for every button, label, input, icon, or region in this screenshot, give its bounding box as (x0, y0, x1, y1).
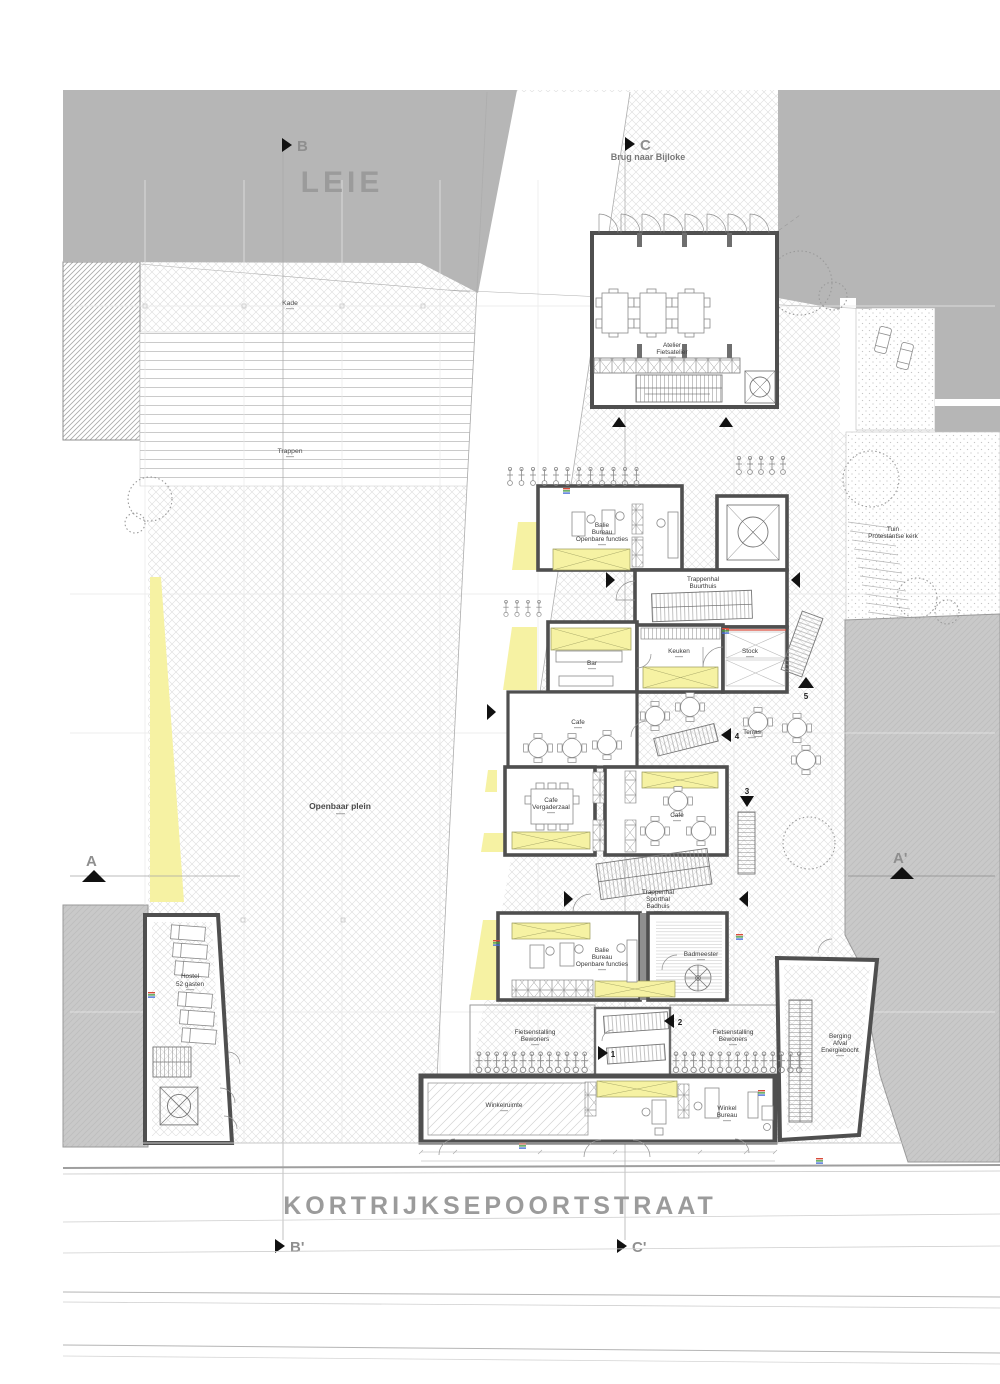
label-fietsenstalling-oost: Fietsenstalling (713, 1029, 754, 1036)
svg-text:Bewoners: Bewoners (521, 1036, 549, 1043)
label-keuken: Keuken (668, 648, 690, 655)
marker-4-label: 4 (735, 732, 740, 741)
river-stairs (140, 332, 475, 486)
svg-text:Fietsatelier: Fietsatelier (656, 349, 688, 356)
svg-text:Sporthal: Sporthal (646, 896, 670, 903)
svg-text:Energiebocht: Energiebocht (821, 1047, 859, 1054)
marker-2-label: 2 (678, 1018, 683, 1027)
parking-area (856, 308, 935, 430)
winkelruimte-floor (428, 1083, 588, 1135)
plan-canvas: Atelier Fietsatelier (0, 0, 1000, 1384)
svg-text:Bureau: Bureau (717, 1112, 738, 1119)
label-bar: Bar (587, 660, 598, 667)
label-trappenhal-sporthal: Trappenhal (642, 889, 674, 896)
label-badmeester: Badmeester (684, 951, 719, 958)
section-b-label: B (297, 138, 308, 155)
building-atelier: Atelier Fietsatelier (592, 214, 777, 427)
marker-3-label: 3 (745, 787, 750, 796)
garden-area (846, 432, 1000, 622)
section-c2-label: C' (632, 1239, 646, 1256)
svg-text:Protestantse kerk: Protestantse kerk (868, 533, 919, 540)
marker-1-label: 1 (611, 1050, 616, 1059)
label-cafe-noord: Cafe (571, 719, 585, 726)
section-a2-label: A' (893, 850, 907, 867)
label-winkelruimte: Winkelruimte (486, 1102, 523, 1109)
svg-text:Bureau: Bureau (592, 954, 613, 961)
label-street: KORTRIJKSEPOORTSTRAAT (283, 1192, 717, 1220)
site-surfaces (0, 0, 1000, 1384)
marker-5-label: 5 (804, 692, 809, 701)
storage-lockers (594, 358, 740, 373)
label-trappen: Trappen (277, 448, 302, 455)
label-balie-zuid: Balie (595, 947, 610, 954)
label-terras: Terras (743, 729, 761, 736)
svg-text:Openbare functies: Openbare functies (576, 961, 628, 968)
section-c-label: C (640, 137, 651, 154)
section-b2-label: B' (290, 1239, 304, 1256)
label-balie-noord: Balie (595, 522, 610, 529)
architectural-site-plan: Atelier Fietsatelier (0, 0, 1000, 1384)
label-hostel: Hostel (181, 973, 199, 980)
label-openbaar-plein: Openbaar plein (309, 801, 371, 811)
external-stair-3 (738, 812, 755, 874)
label-berging: Berging (829, 1033, 851, 1040)
label-vergaderzaal: Cafe (544, 797, 558, 804)
spiral-stair (685, 965, 711, 991)
label-atelier: Atelier (663, 342, 682, 349)
buurthuis-stairs (652, 590, 753, 621)
section-a-label: A (86, 853, 97, 870)
label-fietsenstalling-west: Fietsenstalling (515, 1029, 556, 1036)
svg-text:Bureau: Bureau (592, 529, 613, 536)
svg-text:52 gasten: 52 gasten (176, 981, 205, 988)
label-tuin: Tuin (887, 526, 900, 533)
label-leie: LEIE (301, 166, 384, 199)
svg-text:Afval: Afval (833, 1040, 847, 1047)
neighbor-west (63, 905, 148, 1147)
label-cafe-zuid: Cafe (670, 812, 684, 819)
label-winkel-bureau: Winkel (717, 1105, 736, 1112)
svg-text:Buurthuis: Buurthuis (690, 583, 717, 590)
water-leie-east (778, 90, 1000, 310)
label-stock: Stock (742, 648, 759, 655)
svg-text:Vergaderzaal: Vergaderzaal (532, 804, 570, 811)
building-berging: Berging Afval Energiebocht (777, 939, 877, 1140)
svg-text:Bewoners: Bewoners (719, 1036, 747, 1043)
atelier-shaft (745, 371, 775, 403)
label-kade: Kade (282, 300, 298, 307)
quay-hatch-block (63, 262, 140, 440)
svg-text:Badhuis: Badhuis (646, 903, 669, 910)
label-trappenhal-buurthuis: Trappenhal (687, 576, 719, 583)
atelier-stairs (636, 375, 722, 402)
svg-text:Openbare functies: Openbare functies (576, 536, 628, 543)
